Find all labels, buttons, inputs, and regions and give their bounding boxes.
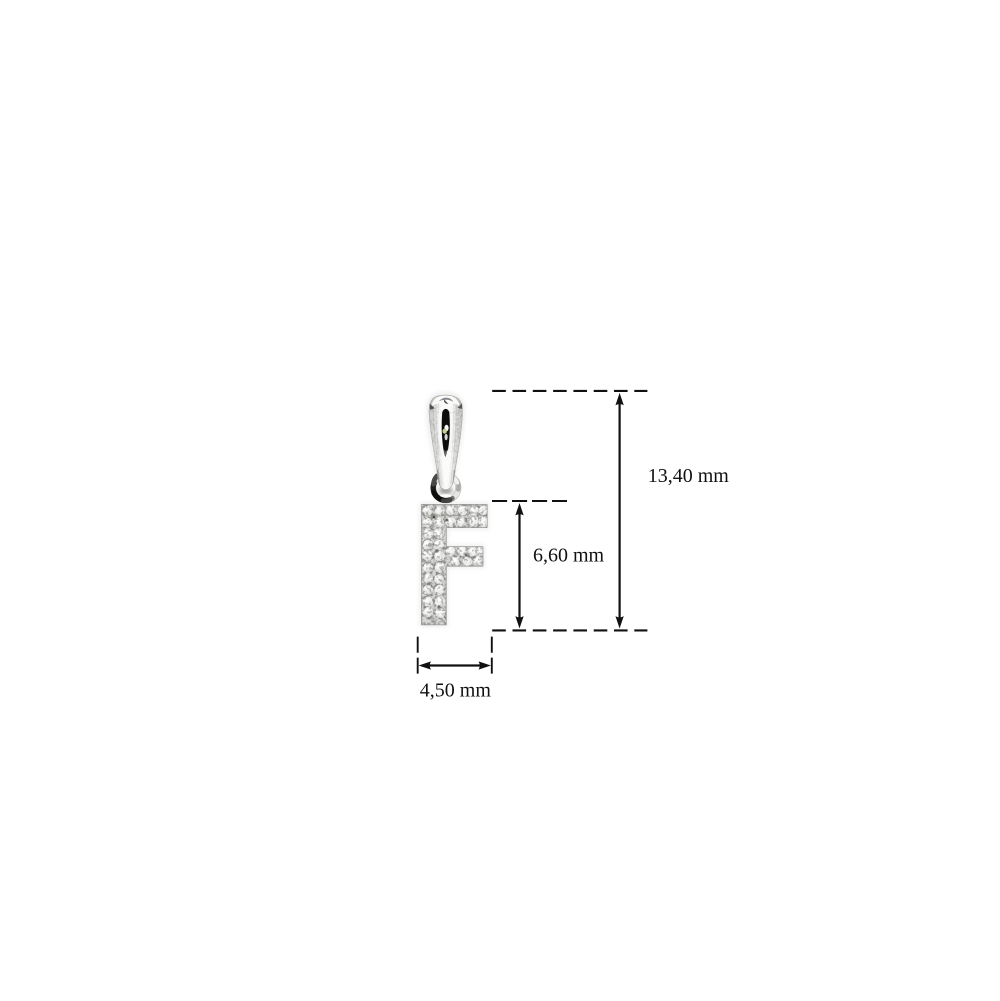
svg-text:4,50 mm: 4,50 mm [420, 680, 492, 702]
svg-text:13,40 mm: 13,40 mm [648, 465, 730, 487]
svg-text:6,60 mm: 6,60 mm [533, 545, 605, 567]
